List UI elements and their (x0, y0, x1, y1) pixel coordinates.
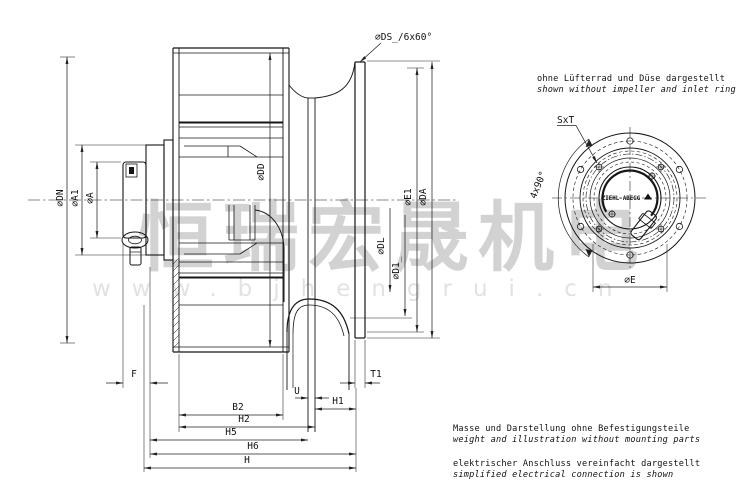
electric-note-de: elektrischer Anschluss vereinfacht darge… (453, 459, 700, 469)
dim-f-label: F (131, 369, 137, 380)
dim-h1-label: H1 (332, 396, 344, 407)
motor (122, 140, 173, 265)
drawing-sheet: 恒瑞宏晟机电 www.bjhengrui.cn (0, 0, 750, 501)
dimensions: ⌀DS_/6x60° ⌀DN ⌀A1 ⌀A ⌀DD (55, 32, 440, 472)
section-hatch (173, 258, 179, 348)
logo-triangle-icon (644, 194, 652, 200)
dim-h6-label: H6 (247, 441, 259, 452)
sxt-dimension: SxT (557, 115, 597, 163)
rear-view-note-de: ohne Lüfterrad und Düse dargestellt (537, 74, 725, 84)
dim-a-label: ⌀A (85, 192, 96, 204)
technical-drawing: ⌀DS_/6x60° ⌀DN ⌀A1 ⌀A ⌀DD (0, 0, 750, 501)
side-view: ⌀DS_/6x60° ⌀DN ⌀A1 ⌀A ⌀DD (28, 32, 458, 472)
weight-note-en: weight and illustration without mounting… (453, 435, 700, 445)
cable-gland-rear (628, 208, 659, 241)
dim-e-label: ⌀E (624, 275, 636, 286)
rear-view-note-en: shown without impeller and inlet ring (537, 85, 736, 95)
cable-gland (122, 232, 148, 265)
dim-h-label: H (244, 455, 250, 466)
dim-b2-label: B2 (232, 402, 243, 413)
dim-h2-label: H2 (238, 414, 249, 425)
dim-d1-label: ⌀D1_ (391, 256, 402, 279)
dim-sxt-label: SxT (557, 115, 574, 126)
impeller-block (173, 48, 289, 352)
inlet-bell (287, 299, 349, 390)
dim-e1-label: ⌀E1 (403, 188, 414, 205)
footnotes: Masse und Darstellung ohne Befestigungst… (453, 424, 700, 480)
dim-t1-label: T1 (370, 369, 382, 380)
dim-ds-label: ⌀DS_/6x60° (375, 32, 432, 43)
dim-u-label: U (294, 386, 300, 397)
dim-4x90-label: 4x90° (528, 170, 549, 201)
hub (229, 205, 284, 302)
dim-dd-label: ⌀DD (256, 163, 267, 180)
dim-dn-label: ⌀DN (55, 189, 66, 206)
dim-da-label: ⌀DA (418, 188, 429, 205)
dim-dl-label: ⌀DL (376, 237, 387, 254)
electric-note-en: simplified electrical connection is show… (453, 470, 673, 480)
rear-view: ZIEHL-ABEGG 4x90° SxT ⌀E (528, 74, 736, 292)
weight-note-de: Masse und Darstellung ohne Befestigungst… (453, 424, 689, 434)
dim-h5-label: H5 (225, 427, 236, 438)
ziehl-abegg-logo: ZIEHL-ABEGG (602, 196, 641, 202)
dim-a1-label: ⌀A1 (70, 189, 81, 206)
